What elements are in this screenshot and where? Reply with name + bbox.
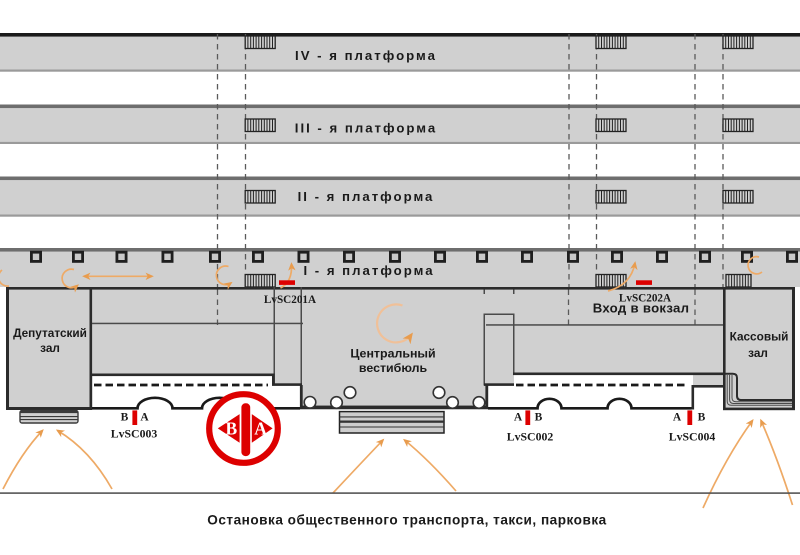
svg-text:B: B — [225, 419, 237, 439]
svg-text:B: B — [535, 412, 543, 424]
svg-text:B: B — [121, 412, 129, 424]
svg-text:A: A — [673, 412, 682, 424]
svg-text:B: B — [698, 412, 706, 424]
svg-text:Депутатский: Депутатский — [13, 326, 87, 340]
svg-text:A: A — [140, 412, 149, 424]
svg-text:II - я платформа: II - я платформа — [298, 189, 435, 204]
svg-text:LvSC201A: LvSC201A — [264, 294, 316, 306]
svg-text:Кассовый: Кассовый — [730, 330, 789, 344]
svg-text:A: A — [514, 412, 523, 424]
svg-text:вестибюль: вестибюль — [359, 361, 428, 375]
svg-text:III - я платформа: III - я платформа — [295, 121, 437, 136]
svg-text:A: A — [254, 419, 267, 439]
svg-text:I - я платформа: I - я платформа — [303, 263, 434, 278]
svg-text:Вход в вокзал: Вход в вокзал — [593, 301, 690, 316]
svg-text:Центральный: Центральный — [350, 347, 435, 361]
svg-text:зал: зал — [748, 346, 768, 360]
svg-text:Остановка общественного трансп: Остановка общественного транспорта, такс… — [207, 513, 606, 528]
svg-text:зал: зал — [40, 341, 60, 355]
svg-text:LvSC003: LvSC003 — [111, 427, 158, 441]
svg-text:IV - я платформа: IV - я платформа — [295, 48, 437, 63]
svg-text:LvSC004: LvSC004 — [669, 430, 716, 444]
svg-text:LvSC002: LvSC002 — [507, 430, 554, 444]
